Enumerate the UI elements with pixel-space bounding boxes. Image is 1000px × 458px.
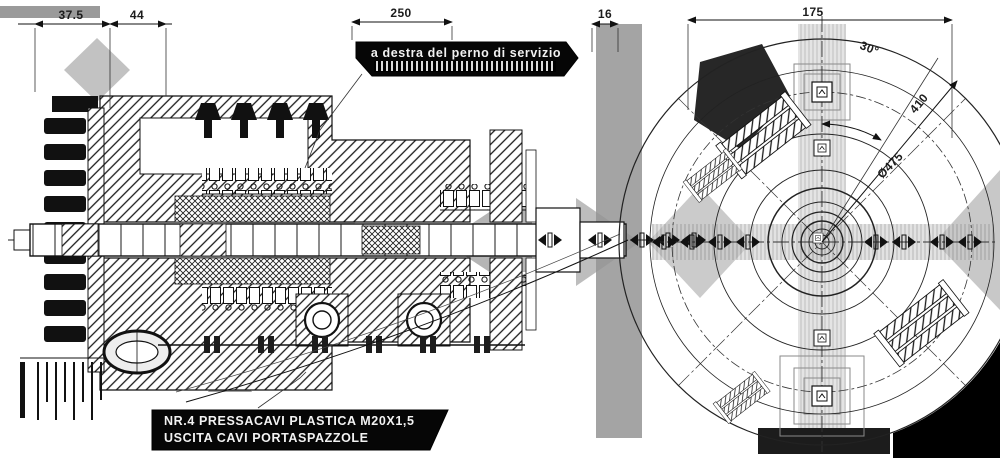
sight-glass-oval (104, 331, 170, 373)
cable-gland-note-line2: USCITA CAVI PORTASPAZZOLE (164, 431, 369, 445)
dim-37-5-label: 37.5 (59, 8, 84, 22)
dimension-475: Ø475 (874, 149, 906, 181)
service-pin-note-text: a destra del perno di servizio (371, 46, 561, 60)
main-shaft (14, 224, 626, 256)
dim-475-label: Ø475 (874, 149, 906, 181)
dimension-250: 250 (352, 6, 452, 40)
dim-250-label: 250 (390, 6, 411, 20)
cable-gland-note-line1: NR.4 PRESSACAVI PLASTICA M20X1,5 (164, 414, 415, 428)
dim-16-label: 16 (598, 7, 612, 21)
dim-30deg-label: 30° (858, 38, 881, 58)
technical-drawing-canvas: 37.5 44 250 16 a destra del perno di ser… (0, 0, 1000, 458)
dim-175-label: 175 (802, 5, 823, 19)
dim-44-label: 44 (130, 8, 144, 22)
